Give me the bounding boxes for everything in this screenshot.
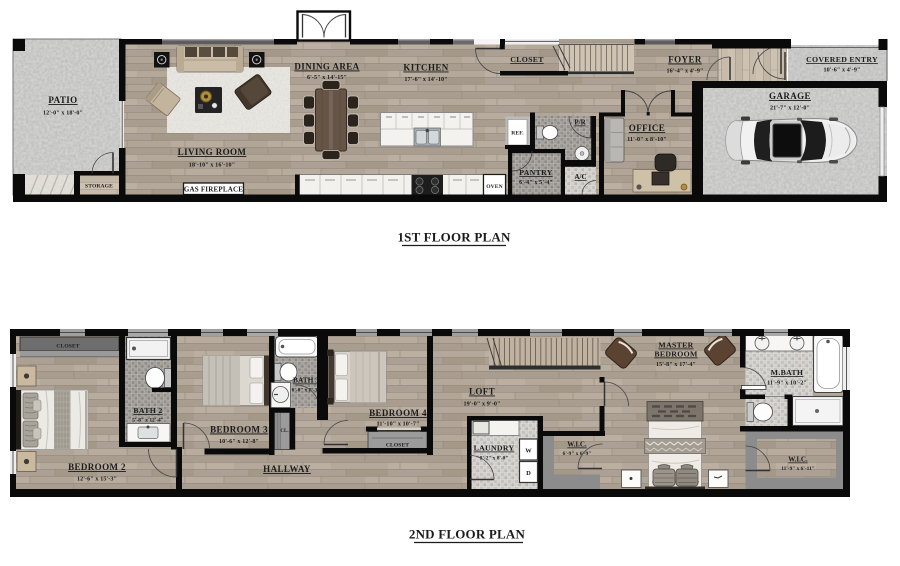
svg-text:M.BATH: M.BATH [771, 368, 804, 377]
svg-text:D: D [526, 470, 531, 477]
svg-text:15'-8" x 17'-4": 15'-8" x 17'-4" [656, 362, 696, 368]
svg-text:OFFICE: OFFICE [629, 123, 665, 133]
svg-text:11'-0" x 8'-10": 11'-0" x 8'-10" [627, 137, 667, 143]
svg-text:BEDROOM 3: BEDROOM 3 [210, 425, 268, 435]
svg-text:CLOSET: CLOSET [56, 344, 79, 350]
svg-text:12'-6" x 15'-3": 12'-6" x 15'-3" [77, 477, 117, 483]
svg-text:A/C: A/C [574, 173, 586, 181]
svg-text:CL.: CL. [280, 429, 289, 434]
svg-text:KITCHEN: KITCHEN [403, 63, 448, 73]
svg-text:PANTRY: PANTRY [519, 168, 553, 177]
svg-text:W.I.C.: W.I.C. [788, 456, 808, 464]
svg-text:W: W [525, 448, 532, 455]
svg-text:BEDROOM 4: BEDROOM 4 [369, 408, 427, 418]
svg-text:REF.: REF. [511, 131, 524, 137]
svg-text:DINING AREA: DINING AREA [294, 62, 359, 72]
svg-text:17'-6" x 14'-10": 17'-6" x 14'-10" [404, 77, 447, 83]
svg-text:BEDROOM: BEDROOM [654, 350, 698, 359]
svg-text:OVEN: OVEN [486, 184, 503, 190]
svg-text:LOFT: LOFT [469, 387, 495, 397]
svg-text:FOYER: FOYER [668, 55, 702, 65]
svg-text:BATH 2: BATH 2 [133, 406, 162, 415]
svg-text:GAS FIREPLACE: GAS FIREPLACE [184, 186, 243, 194]
svg-text:COVERED ENTRY: COVERED ENTRY [806, 55, 878, 64]
svg-text:P/R: P/R [574, 119, 586, 127]
svg-text:2ND FLOOR PLAN: 2ND FLOOR PLAN [409, 527, 526, 542]
svg-text:6'-0" x 8'-3": 6'-0" x 8'-3" [292, 388, 321, 394]
svg-text:CLOSET: CLOSET [386, 443, 409, 449]
svg-text:11'-10" x 10'-7": 11'-10" x 10'-7" [377, 422, 420, 428]
svg-text:11'-9" x 6'-11": 11'-9" x 6'-11" [781, 466, 815, 472]
svg-text:LIVING ROOM: LIVING ROOM [178, 147, 247, 157]
svg-text:21'-7" x 12'-0": 21'-7" x 12'-0" [770, 106, 810, 112]
svg-text:BEDROOM 2: BEDROOM 2 [68, 462, 126, 472]
svg-text:19'-0" x 9'-0": 19'-0" x 9'-0" [464, 402, 501, 408]
svg-text:MASTER: MASTER [658, 341, 693, 350]
svg-text:5'-8" x 12'-4": 5'-8" x 12'-4" [132, 418, 163, 424]
svg-text:W.I.C.: W.I.C. [567, 441, 587, 449]
svg-text:CLOSET: CLOSET [510, 55, 544, 64]
svg-text:18'-10" x 16'-10": 18'-10" x 16'-10" [189, 163, 235, 169]
svg-text:11'-9" x 10'-2": 11'-9" x 10'-2" [767, 381, 807, 387]
svg-text:6'-9" x 6'-9": 6'-9" x 6'-9" [563, 451, 592, 457]
svg-text:BATH 3: BATH 3 [293, 376, 319, 385]
svg-text:STORAGE: STORAGE [85, 184, 113, 190]
svg-text:8'-2" x 8'-0": 8'-2" x 8'-0" [480, 456, 509, 462]
svg-text:1ST FLOOR PLAN: 1ST FLOOR PLAN [397, 230, 510, 245]
svg-text:GARAGE: GARAGE [769, 91, 811, 101]
svg-text:16'-4" x 4'-9": 16'-4" x 4'-9" [667, 69, 704, 75]
svg-text:10'-6" x 12'-8": 10'-6" x 12'-8" [219, 439, 259, 445]
svg-text:6'-4" x 5'-4": 6'-4" x 5'-4" [519, 180, 553, 186]
svg-text:LAUNDRY: LAUNDRY [474, 444, 515, 453]
svg-text:10'-6" x 4'-9": 10'-6" x 4'-9" [824, 68, 861, 74]
svg-text:HALLWAY: HALLWAY [263, 464, 311, 474]
svg-text:12'-0" x 18'-0": 12'-0" x 18'-0" [43, 111, 83, 117]
svg-text:PATIO: PATIO [48, 95, 77, 105]
